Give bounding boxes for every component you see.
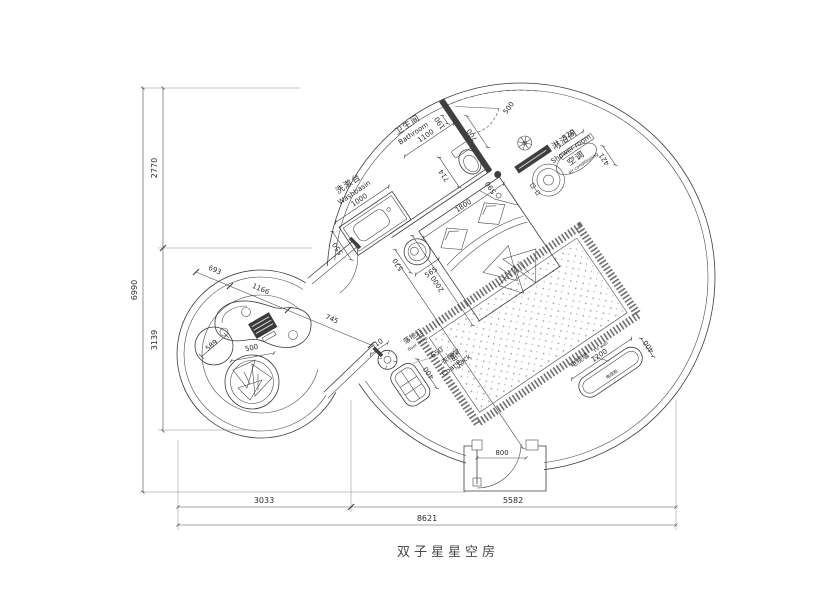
rug [418, 227, 638, 423]
page-title: 双子星星空房 [397, 544, 499, 560]
dim-left-top: 2770 [150, 158, 159, 178]
dim-lounge-b: 1166 [251, 282, 271, 297]
dim-tv-w: 400 [642, 339, 656, 355]
label-tv-cn: 电视墙 [568, 350, 590, 369]
dim-pod-chair: 500 [231, 343, 274, 361]
dim-bottom-left: 3033 [254, 496, 274, 505]
dim-left-total: 6990 [130, 280, 139, 300]
floor-drain-icon [515, 133, 534, 152]
dim-door: 800 [495, 449, 508, 457]
desk-stool [289, 331, 298, 340]
svg-text:500: 500 [244, 343, 259, 354]
dim-bed-length: 2000 [429, 274, 446, 293]
shower-door-leaf [455, 87, 499, 128]
main-room-wall [327, 83, 715, 471]
floorplan-canvas: 589 500 693 1166 745 [0, 0, 837, 592]
dim-drain: 590 [484, 180, 498, 196]
faucet-icon [386, 207, 391, 212]
lounge-pod-chair [225, 355, 279, 409]
pillow [434, 219, 475, 258]
dim-coat-w: 400 [422, 365, 436, 381]
dim-left-bottom: 3139 [150, 330, 159, 350]
pillow [471, 194, 512, 233]
dim-bottom-right: 5582 [503, 496, 523, 505]
label-tv-cabinet: 电视柜 [604, 367, 620, 381]
dim-wall-offset: 190 [433, 115, 447, 131]
door-post [526, 440, 538, 450]
dim-ac-w: 421 [597, 151, 611, 167]
lounge-desk [215, 301, 311, 348]
dim-toilet: 714 [437, 167, 451, 183]
lounge-pouf: 589 [195, 327, 233, 365]
dim-bed-width: 1800 [454, 198, 473, 215]
dim-lounge-a: 693 [207, 264, 222, 277]
dim-shower-door: 500 [502, 100, 516, 116]
dim-vanity-depth: 550 [331, 241, 345, 257]
bedside-table [399, 234, 435, 270]
desk-stool [242, 308, 251, 317]
door-post [472, 440, 482, 450]
dim-pouf: 589 [204, 338, 219, 353]
shower-wall [439, 99, 492, 174]
dim-bottom-total: 8621 [417, 514, 437, 523]
drain-column [493, 170, 503, 180]
floorplan-page: 589 500 693 1166 745 [0, 0, 837, 592]
